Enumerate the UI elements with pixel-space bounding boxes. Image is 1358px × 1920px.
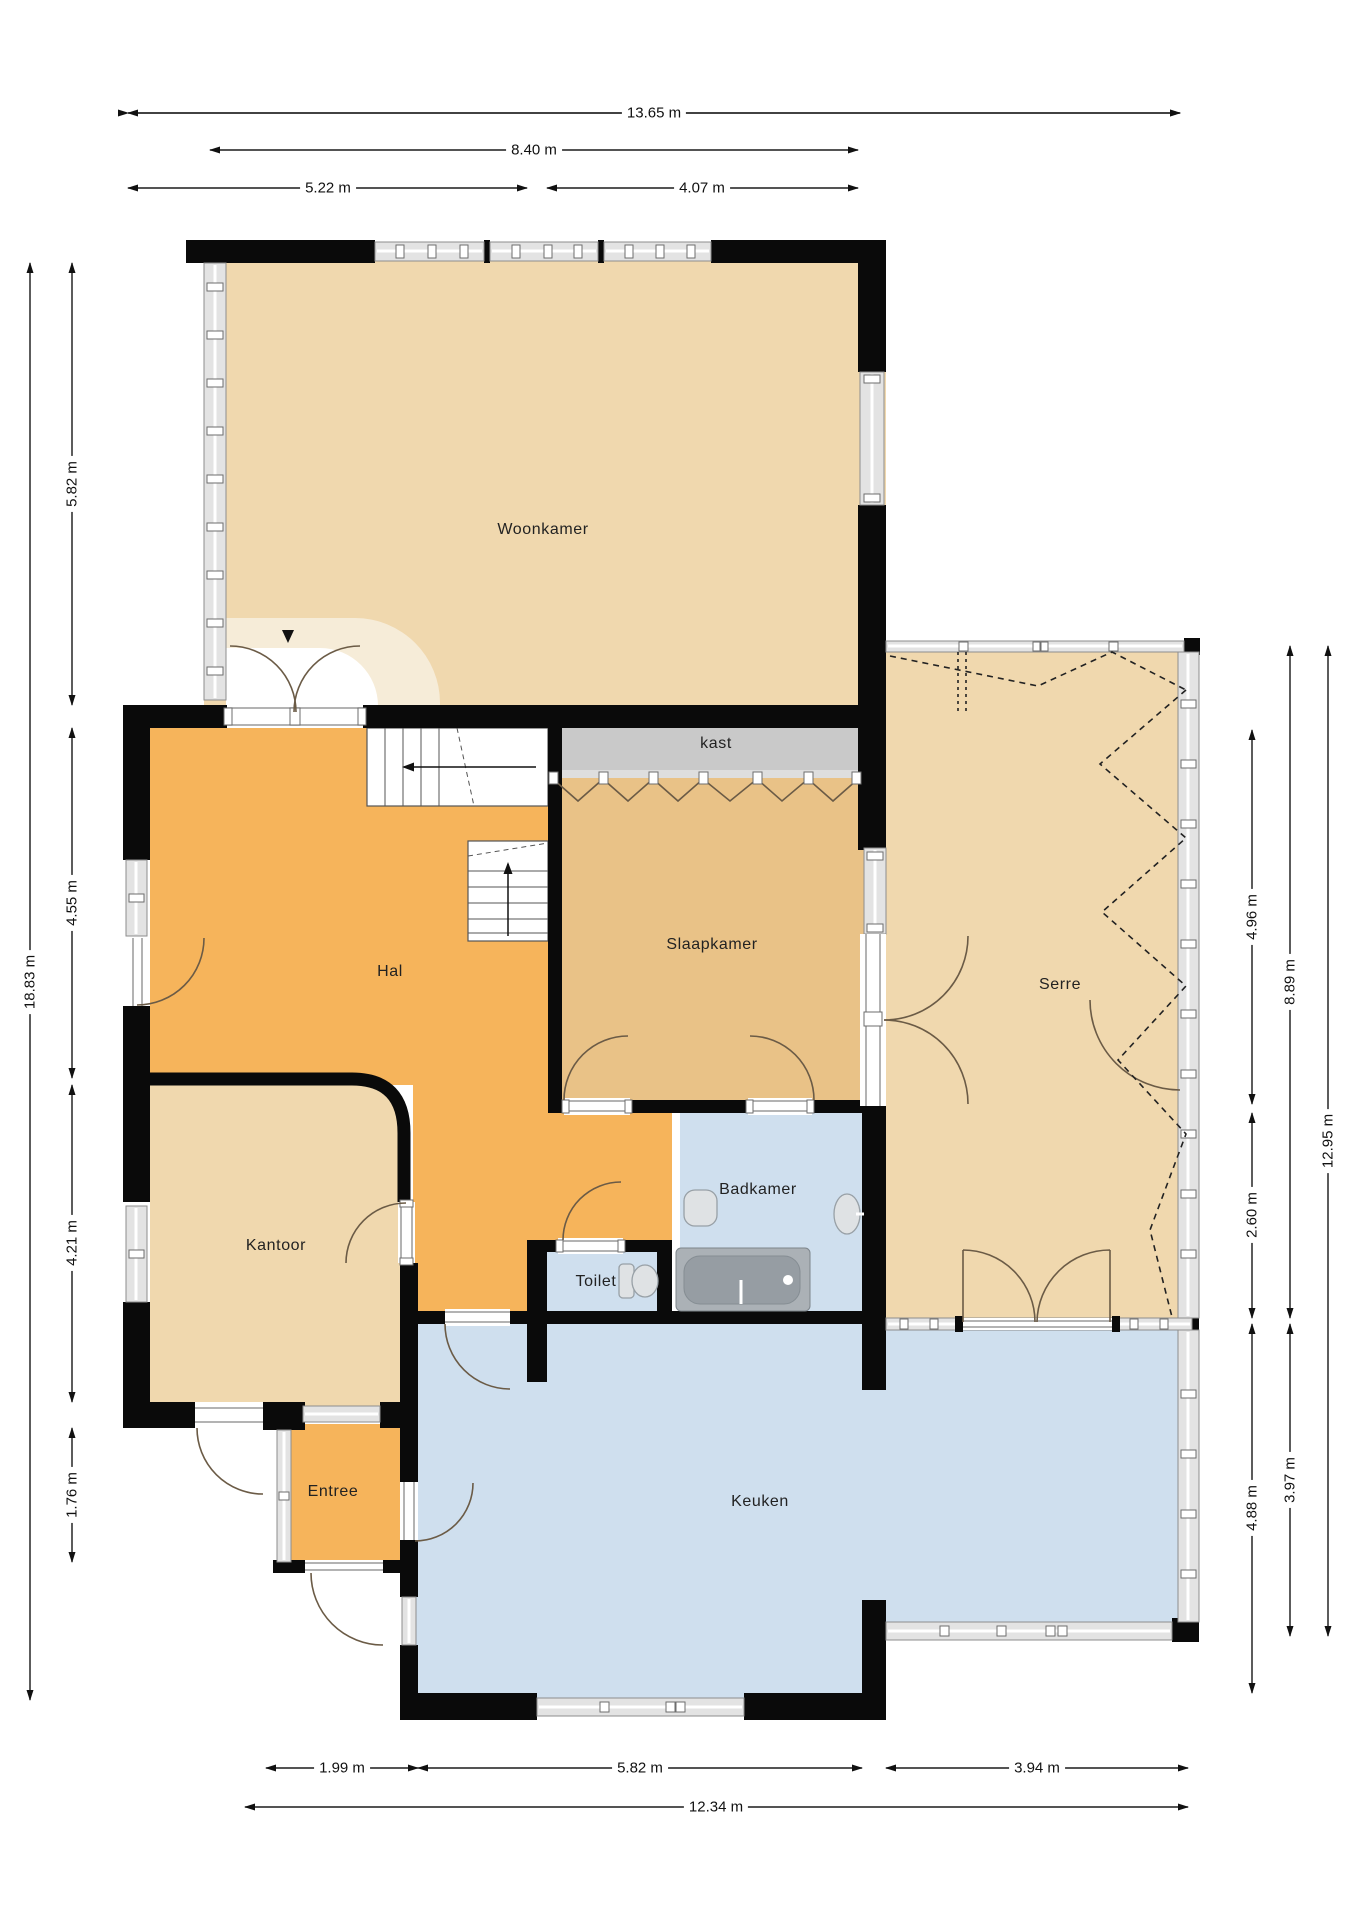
serre-floor xyxy=(880,645,1192,1325)
floorplan-page: Woonkamer Hal kast Slaapkamer Serre Kant… xyxy=(0,0,1358,1920)
dim-right-keuken: 4.88 m xyxy=(1244,1480,1261,1536)
dim-bottom-keuken: 5.82 m xyxy=(612,1760,668,1777)
room-label-serre: Serre xyxy=(1039,976,1081,994)
dim-right-serre-lower: 2.60 m xyxy=(1244,1187,1261,1243)
dim-left-kantoor: 4.21 m xyxy=(64,1215,81,1271)
dim-left-woonkamer: 5.82 m xyxy=(64,456,81,512)
dim-bottom-total: 12.34 m xyxy=(684,1799,748,1816)
dim-left-total: 18.83 m xyxy=(22,950,39,1014)
room-label-entree: Entree xyxy=(308,1483,359,1501)
dim-right-serre-total: 8.89 m xyxy=(1282,954,1299,1010)
room-floors xyxy=(150,252,1192,1716)
dim-top-right: 4.07 m xyxy=(674,180,730,197)
room-label-kast: kast xyxy=(700,735,732,753)
toilet-bowl xyxy=(632,1265,658,1297)
dim-bottom-entree: 1.99 m xyxy=(314,1760,370,1777)
dim-total-width: 13.65 m xyxy=(622,105,686,122)
floorplan-drawing xyxy=(0,0,1358,1920)
dim-top-left: 5.22 m xyxy=(300,180,356,197)
room-label-hal: Hal xyxy=(377,963,403,981)
room-label-kantoor: Kantoor xyxy=(246,1237,306,1255)
dim-left-entree: 1.76 m xyxy=(64,1467,81,1523)
room-label-slaapkamer: Slaapkamer xyxy=(666,936,757,954)
room-label-toilet: Toilet xyxy=(576,1273,617,1291)
room-label-keuken: Keuken xyxy=(731,1493,789,1511)
dim-left-hal: 4.55 m xyxy=(64,875,81,931)
dim-woonkamer-width: 8.40 m xyxy=(506,142,562,159)
bathtub-faucet-icon xyxy=(783,1275,793,1285)
sink xyxy=(684,1190,717,1226)
room-label-badkamer: Badkamer xyxy=(719,1181,797,1199)
dim-right-keuken-ext: 3.97 m xyxy=(1282,1452,1299,1508)
room-label-woonkamer: Woonkamer xyxy=(497,521,588,539)
dim-right-total: 12.95 m xyxy=(1320,1109,1337,1173)
dim-right-serre-upper: 4.96 m xyxy=(1244,889,1261,945)
dim-bottom-right: 3.94 m xyxy=(1009,1760,1065,1777)
